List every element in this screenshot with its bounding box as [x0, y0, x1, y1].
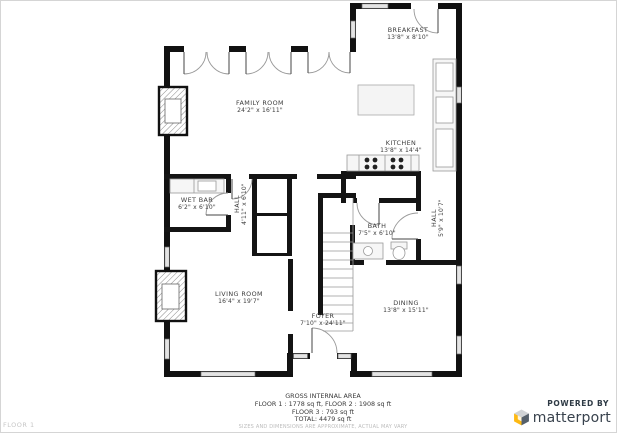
- room-label-kitchen: KITCHEN 13'8" x 14'4": [380, 139, 422, 155]
- matterport-badge[interactable]: POWERED BY matterport: [513, 399, 611, 426]
- room-label-wet-bar: WET BAR 6'2" x 6'10": [178, 196, 216, 212]
- gia-total: TOTAL: 4479 sq ft: [239, 416, 408, 424]
- room-label-hall-1: HALL 4'11" x 6'10": [233, 183, 249, 225]
- matterport-cube-icon: [513, 409, 530, 426]
- family-room-fireplace: [159, 87, 187, 135]
- floor-number-label: FLOOR 1: [3, 421, 35, 429]
- room-label-breakfast: BREAKFAST 13'8" x 8'10": [387, 26, 429, 42]
- room-label-hall-2: HALL 5'9" x 10'7": [430, 199, 446, 237]
- floor-plan-drawing: [1, 1, 617, 433]
- room-label-living-room: LIVING ROOM 16'4" x 19'7": [215, 290, 263, 306]
- powered-by-label: POWERED BY: [513, 399, 609, 408]
- room-label-dining: DINING 13'8" x 15'11": [383, 299, 429, 315]
- matterport-wordmark: matterport: [533, 410, 611, 426]
- bath-fixtures: [353, 242, 407, 260]
- room-label-family-room: FAMILY ROOM 24'2" x 16'11": [236, 99, 284, 115]
- disclaimer-text: SIZES AND DIMENSIONS ARE APPROXIMATE, AC…: [239, 424, 408, 431]
- floorplan-page: BREAKFAST 13'8" x 8'10" FAMILY ROOM 24'2…: [0, 0, 617, 433]
- room-label-foyer: FOYER 7'10" x 24'11": [300, 312, 346, 328]
- gross-internal-area-block: GROSS INTERNAL AREA FLOOR 1 : 1778 sq ft…: [239, 393, 408, 431]
- wet-bar-counter: [170, 179, 224, 193]
- room-label-bath: BATH 7'5" x 6'10": [358, 222, 396, 238]
- living-room-fireplace: [156, 271, 186, 321]
